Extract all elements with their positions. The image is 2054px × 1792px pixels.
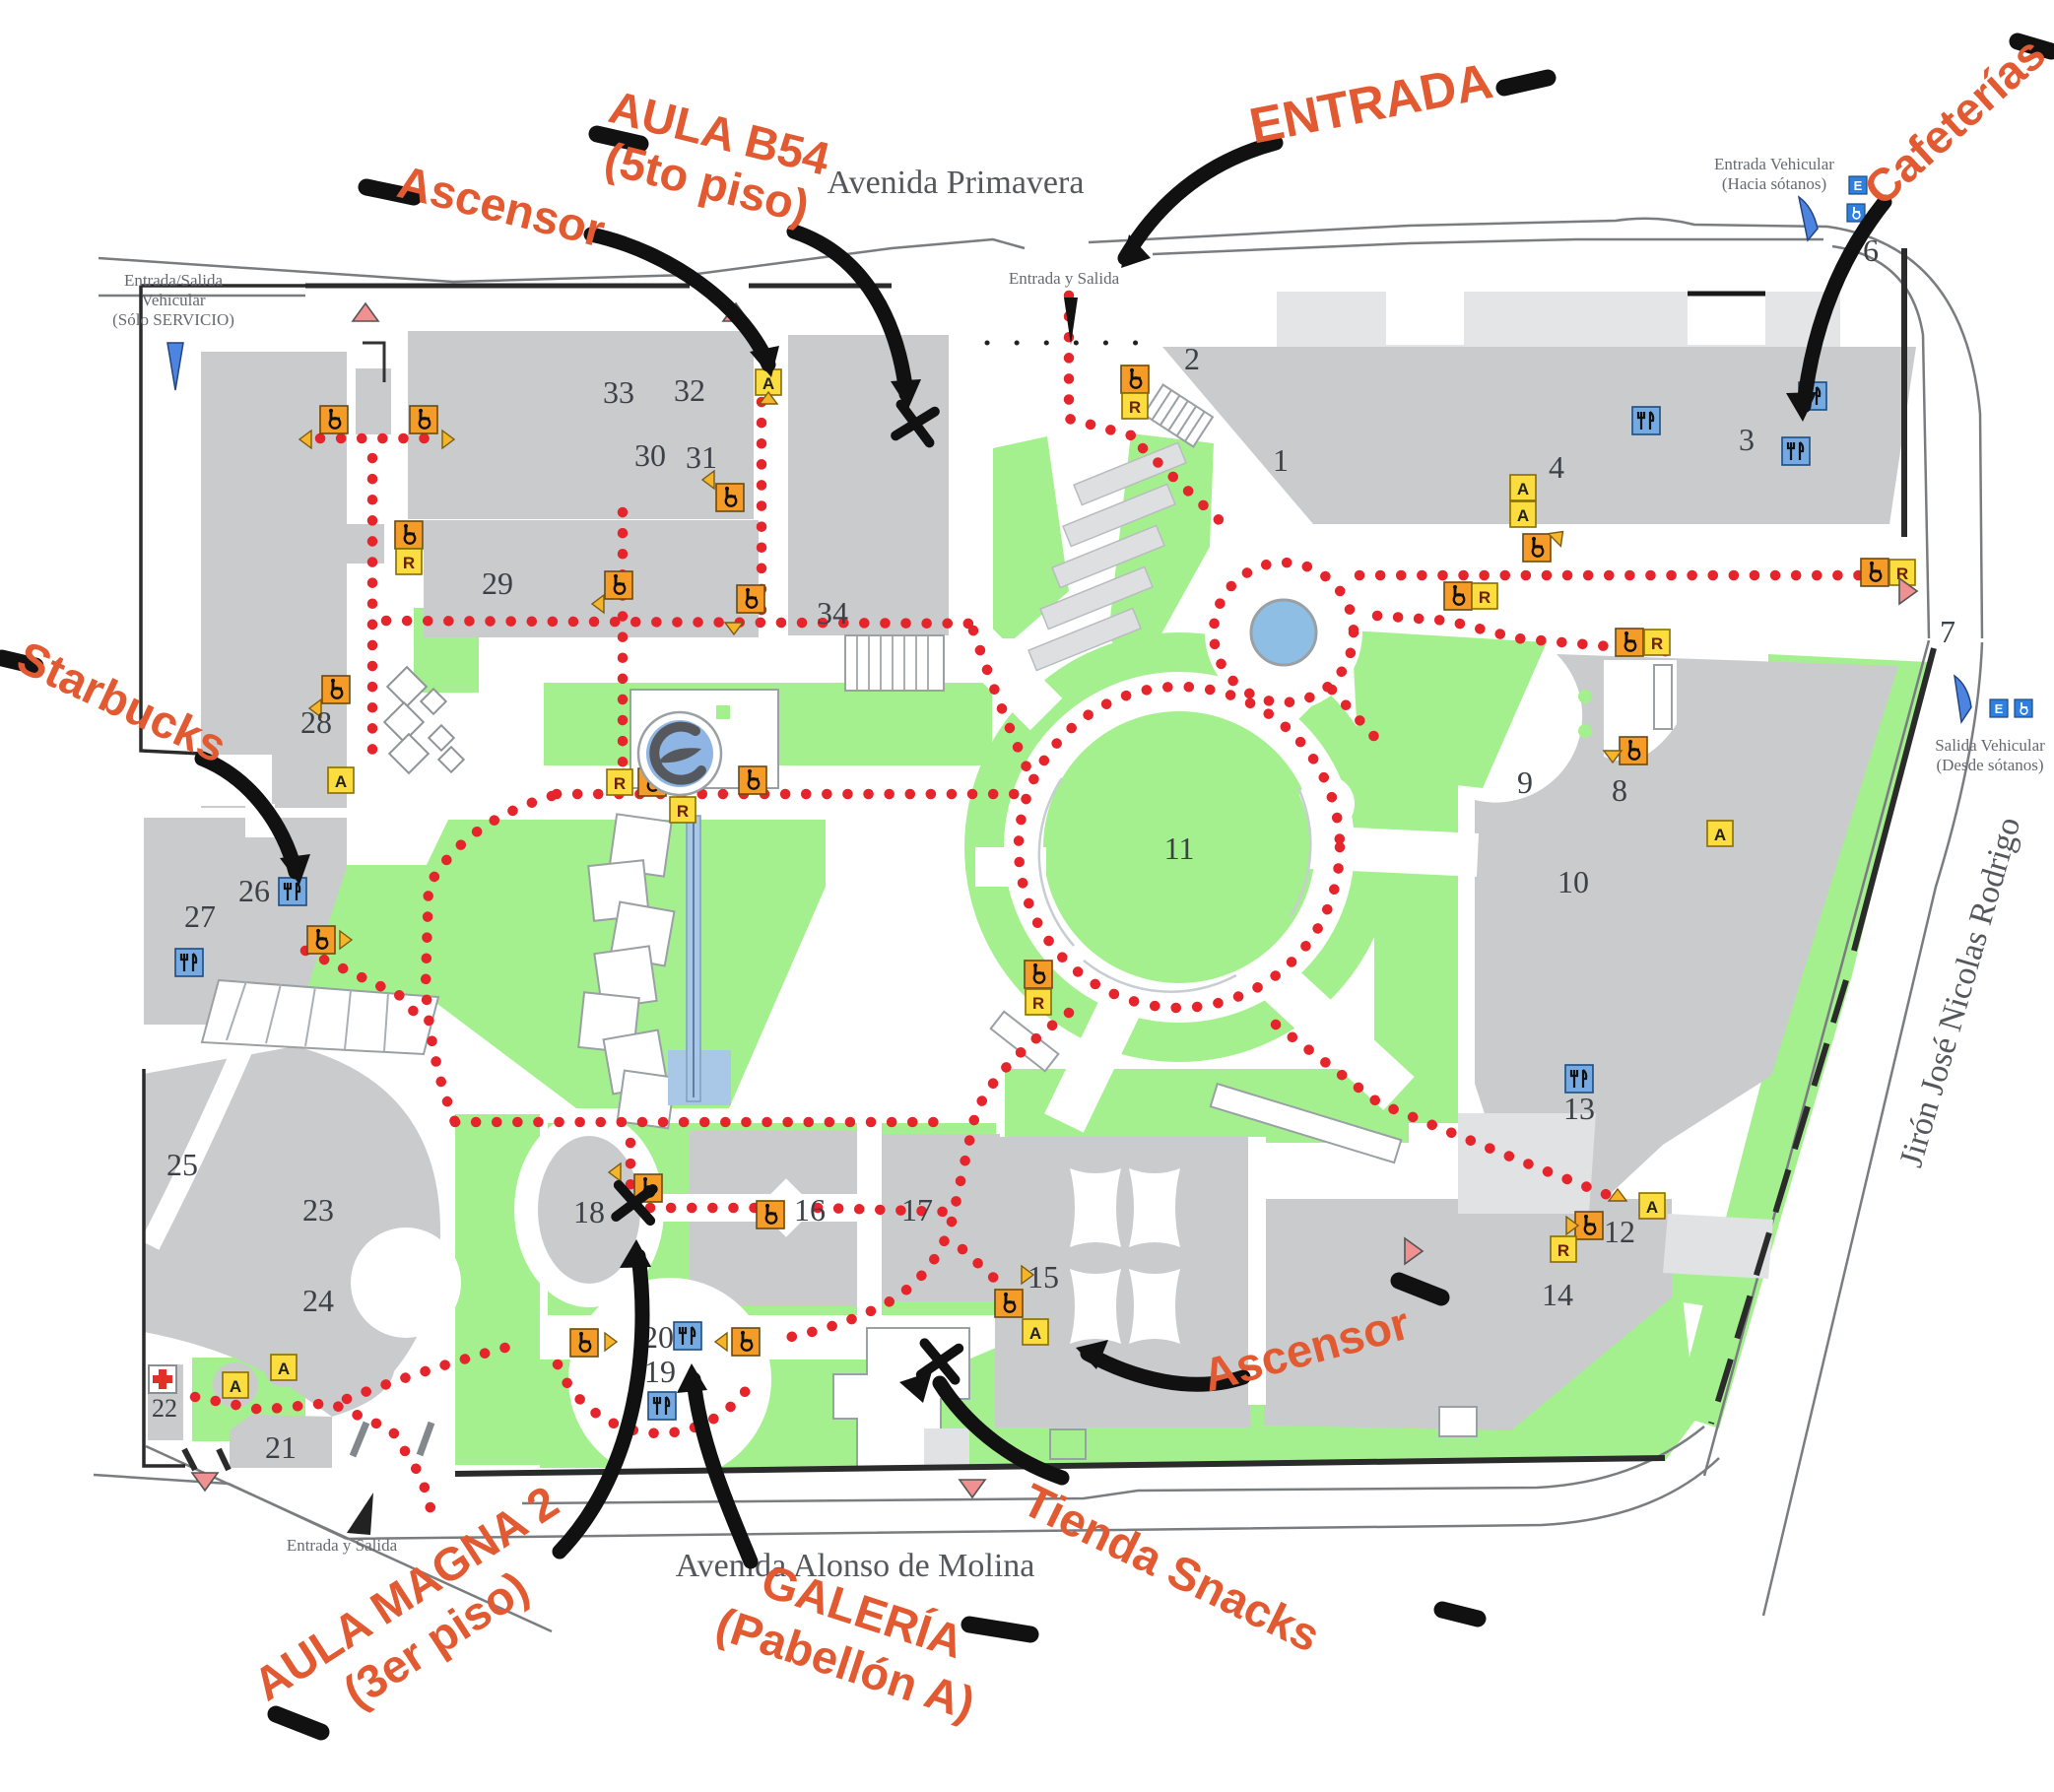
- svg-text:17: 17: [901, 1192, 933, 1228]
- svg-text:28: 28: [300, 704, 332, 740]
- svg-text:12: 12: [1604, 1214, 1635, 1249]
- svg-text:16: 16: [794, 1192, 826, 1228]
- svg-text:22: 22: [152, 1394, 177, 1423]
- svg-text:4: 4: [1549, 449, 1564, 485]
- svg-text:8: 8: [1612, 772, 1627, 808]
- svg-text:26: 26: [238, 873, 270, 908]
- svg-text:14: 14: [1542, 1277, 1573, 1312]
- svg-text:29: 29: [482, 565, 513, 601]
- svg-text:Entrada Vehicular: Entrada Vehicular: [1714, 155, 1834, 173]
- svg-text:31: 31: [686, 439, 717, 475]
- svg-text:Entrada y Salida: Entrada y Salida: [287, 1536, 398, 1555]
- svg-text:10: 10: [1557, 864, 1589, 899]
- svg-text:34: 34: [817, 595, 848, 631]
- svg-text:3: 3: [1739, 422, 1755, 457]
- svg-text:Vehicular: Vehicular: [141, 291, 205, 309]
- svg-text:7: 7: [1940, 614, 1955, 649]
- svg-text:19: 19: [644, 1354, 676, 1389]
- svg-text:25: 25: [166, 1147, 198, 1182]
- svg-text:24: 24: [302, 1283, 334, 1318]
- svg-text:21: 21: [265, 1429, 297, 1465]
- svg-text:27: 27: [184, 898, 216, 934]
- svg-text:(Desde sótanos): (Desde sótanos): [1936, 756, 2043, 774]
- svg-text:Salida Vehicular: Salida Vehicular: [1935, 736, 2045, 755]
- svg-text:(Sólo SERVICIO): (Sólo SERVICIO): [112, 310, 234, 329]
- svg-text:23: 23: [302, 1192, 334, 1228]
- svg-text:2: 2: [1184, 341, 1200, 376]
- svg-text:30: 30: [634, 437, 666, 473]
- svg-text:15: 15: [1027, 1259, 1059, 1294]
- svg-text:Avenida Alonso de Molina: Avenida Alonso de Molina: [676, 1548, 1035, 1584]
- svg-text:(Hacia sótanos): (Hacia sótanos): [1722, 174, 1826, 193]
- svg-text:Entrada y Salida: Entrada y Salida: [1009, 269, 1120, 288]
- svg-text:11: 11: [1164, 830, 1195, 866]
- svg-text:18: 18: [573, 1194, 605, 1229]
- svg-text:33: 33: [603, 374, 634, 410]
- svg-text:Avenida Primavera: Avenida Primavera: [828, 165, 1085, 201]
- svg-text:32: 32: [674, 372, 705, 408]
- svg-text:Entrada/Salida: Entrada/Salida: [124, 271, 224, 290]
- svg-text:9: 9: [1517, 764, 1533, 800]
- svg-text:13: 13: [1563, 1091, 1595, 1126]
- svg-text:1: 1: [1273, 442, 1289, 478]
